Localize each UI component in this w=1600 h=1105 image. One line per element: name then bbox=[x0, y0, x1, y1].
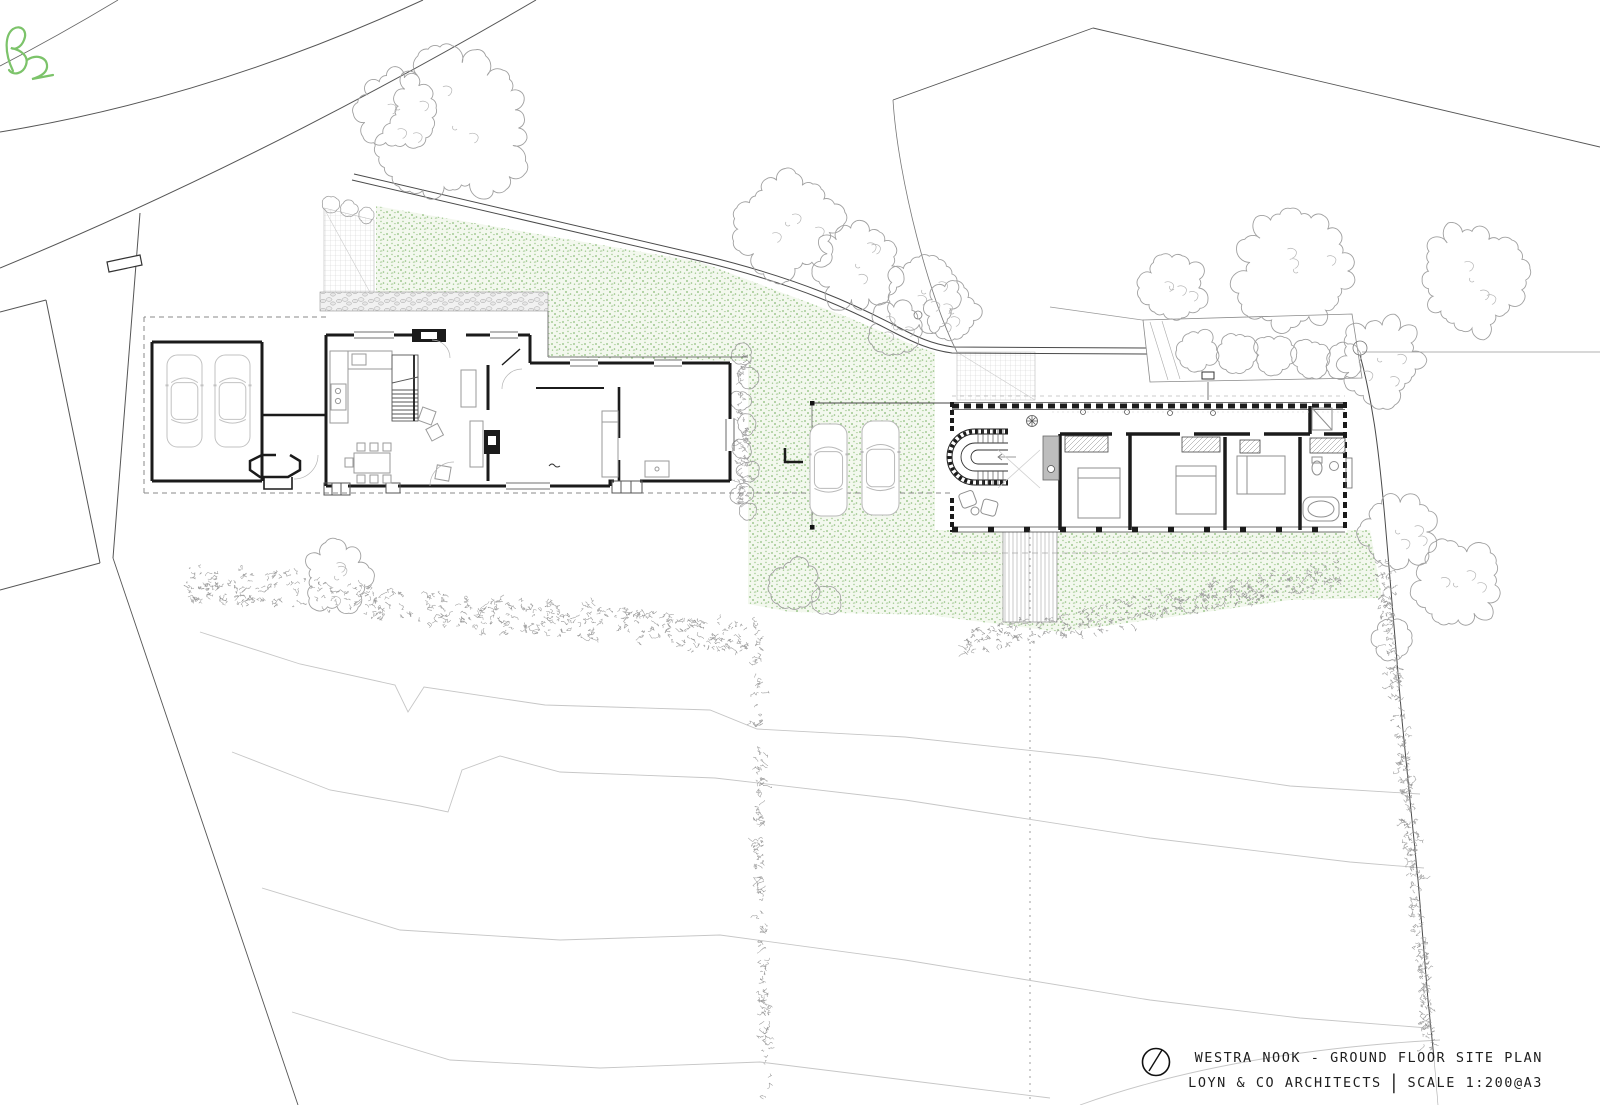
north-field-boundary bbox=[893, 28, 1600, 147]
neighbour-plot-boundary bbox=[0, 300, 100, 590]
entrance-lane-edge bbox=[893, 100, 957, 352]
title-divider: | bbox=[1389, 1069, 1401, 1098]
armchair bbox=[426, 423, 444, 441]
dresser bbox=[645, 461, 669, 477]
site-plan-sheet: WESTRA NOOK - GROUND FLOOR SITE PLAN LOY… bbox=[0, 0, 1600, 1105]
stove-door bbox=[488, 436, 496, 445]
title-block: WESTRA NOOK - GROUND FLOOR SITE PLAN LOY… bbox=[1188, 1046, 1543, 1096]
staircase bbox=[392, 355, 418, 421]
north-arrow-icon bbox=[1143, 1049, 1170, 1076]
lane-edge-west bbox=[46, 300, 100, 563]
tv-unit bbox=[435, 465, 451, 481]
garden-area-main bbox=[376, 206, 935, 615]
drawing-scale: SCALE 1:200@A3 bbox=[1408, 1071, 1544, 1096]
architect-name: LOYN & CO ARCHITECTS bbox=[1188, 1071, 1382, 1096]
furniture-existing bbox=[345, 370, 669, 483]
south-west-boundary bbox=[113, 558, 298, 1105]
porch-step bbox=[264, 477, 292, 489]
sofa-long bbox=[470, 421, 483, 467]
stone-garden-wall-band bbox=[320, 292, 548, 311]
kitchen-island bbox=[1043, 436, 1059, 480]
east-boundary bbox=[1360, 355, 1434, 1058]
link-corridor-walls bbox=[262, 415, 326, 455]
sofa-short bbox=[461, 370, 476, 407]
drawing-title: WESTRA NOOK - GROUND FLOOR SITE PLAN bbox=[1188, 1046, 1543, 1071]
field-gate bbox=[107, 255, 142, 272]
chimney-flue bbox=[421, 332, 437, 339]
contour-lines bbox=[200, 632, 1440, 1105]
island-sink bbox=[1048, 466, 1055, 473]
canted-porch-walls bbox=[250, 455, 300, 477]
side-table bbox=[418, 407, 436, 425]
bed-existing bbox=[602, 411, 618, 477]
dining-table bbox=[354, 453, 390, 473]
dog-sketch bbox=[549, 464, 560, 467]
road-corner-arc bbox=[0, 0, 118, 66]
road-edge-inner bbox=[0, 0, 423, 132]
kitchen-fittings bbox=[330, 351, 392, 423]
plant-symbol bbox=[1027, 416, 1038, 427]
revision-mark-b bbox=[7, 27, 53, 79]
site-plan-drawing bbox=[0, 0, 1600, 1105]
